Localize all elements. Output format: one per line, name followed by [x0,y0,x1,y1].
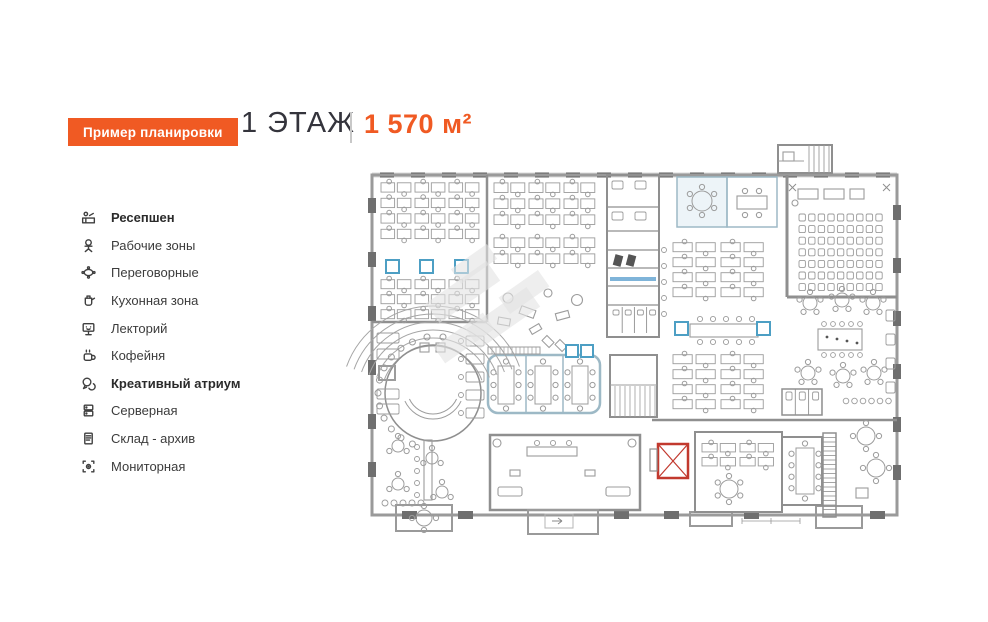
presentation-slide: Пример планировки 1 ЭТАЖ 1 570 м² Ресепш… [0,0,988,622]
floor-plan [0,0,988,622]
floor-plan-svg [0,0,988,622]
